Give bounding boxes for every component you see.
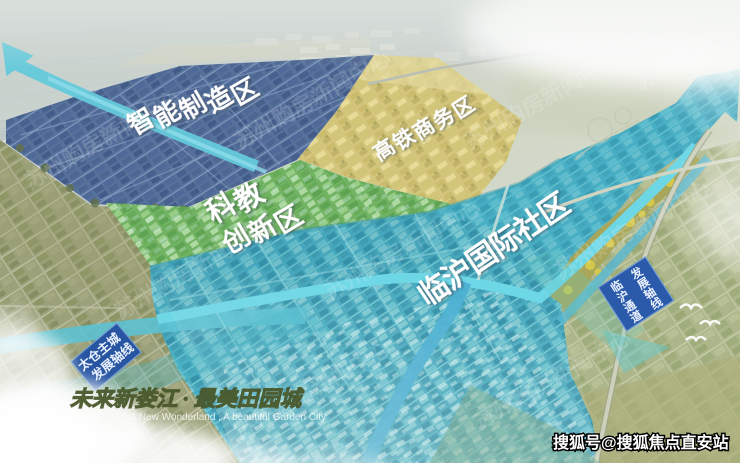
svg-text:A New Wonderland , A beautiful: A New Wonderland , A beautiful Garden Ci…	[130, 412, 326, 423]
svg-text:搜狐号@搜狐焦点直安站: 搜狐号@搜狐焦点直安站	[553, 433, 729, 452]
svg-text:未来新娄江 · 最美田园城: 未来新娄江 · 最美田园城	[70, 387, 305, 411]
